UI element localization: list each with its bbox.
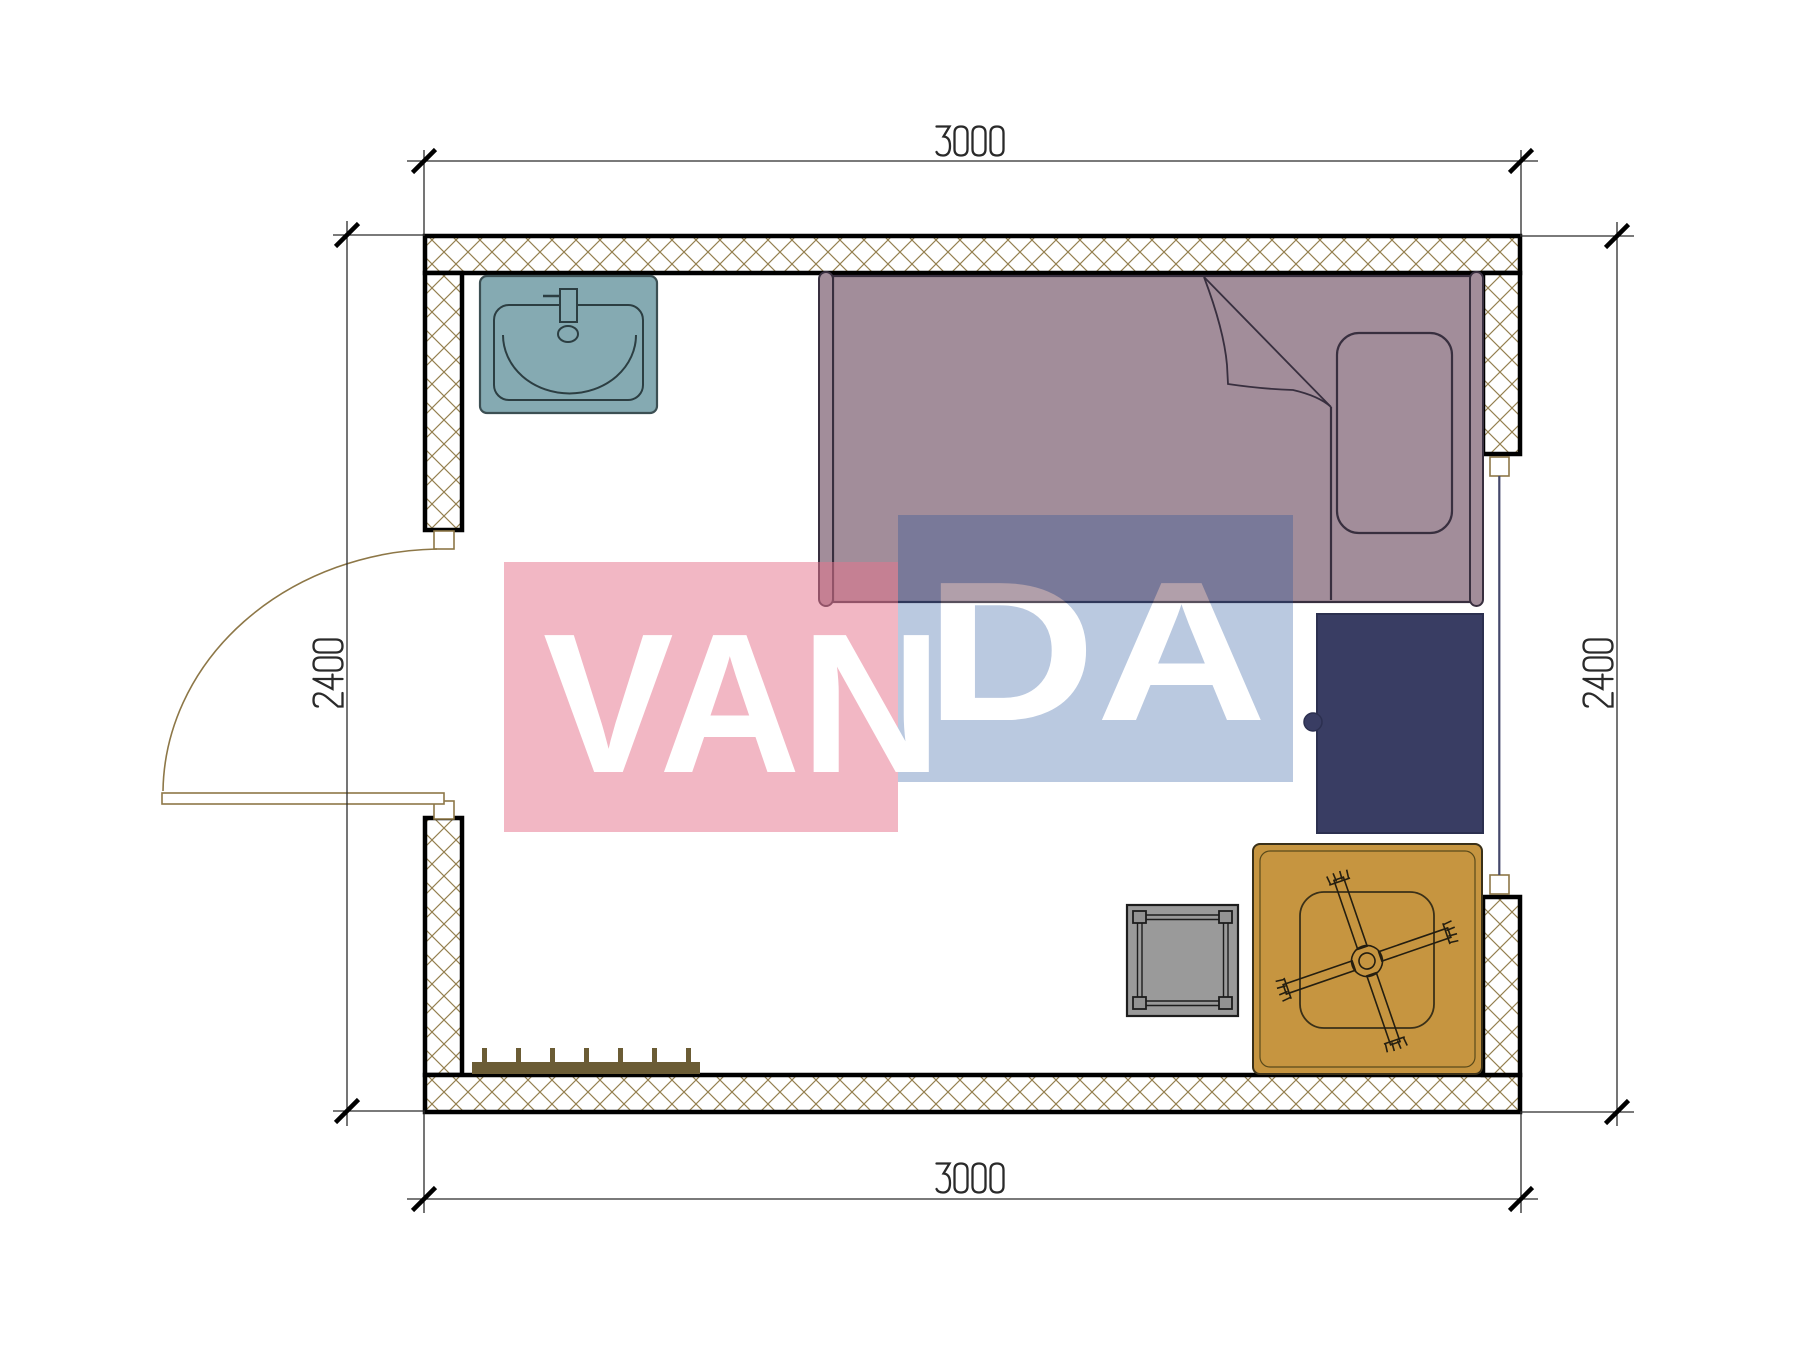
svg-text:VAN: VAN xyxy=(543,593,942,815)
svg-text:DA: DA xyxy=(925,541,1267,763)
